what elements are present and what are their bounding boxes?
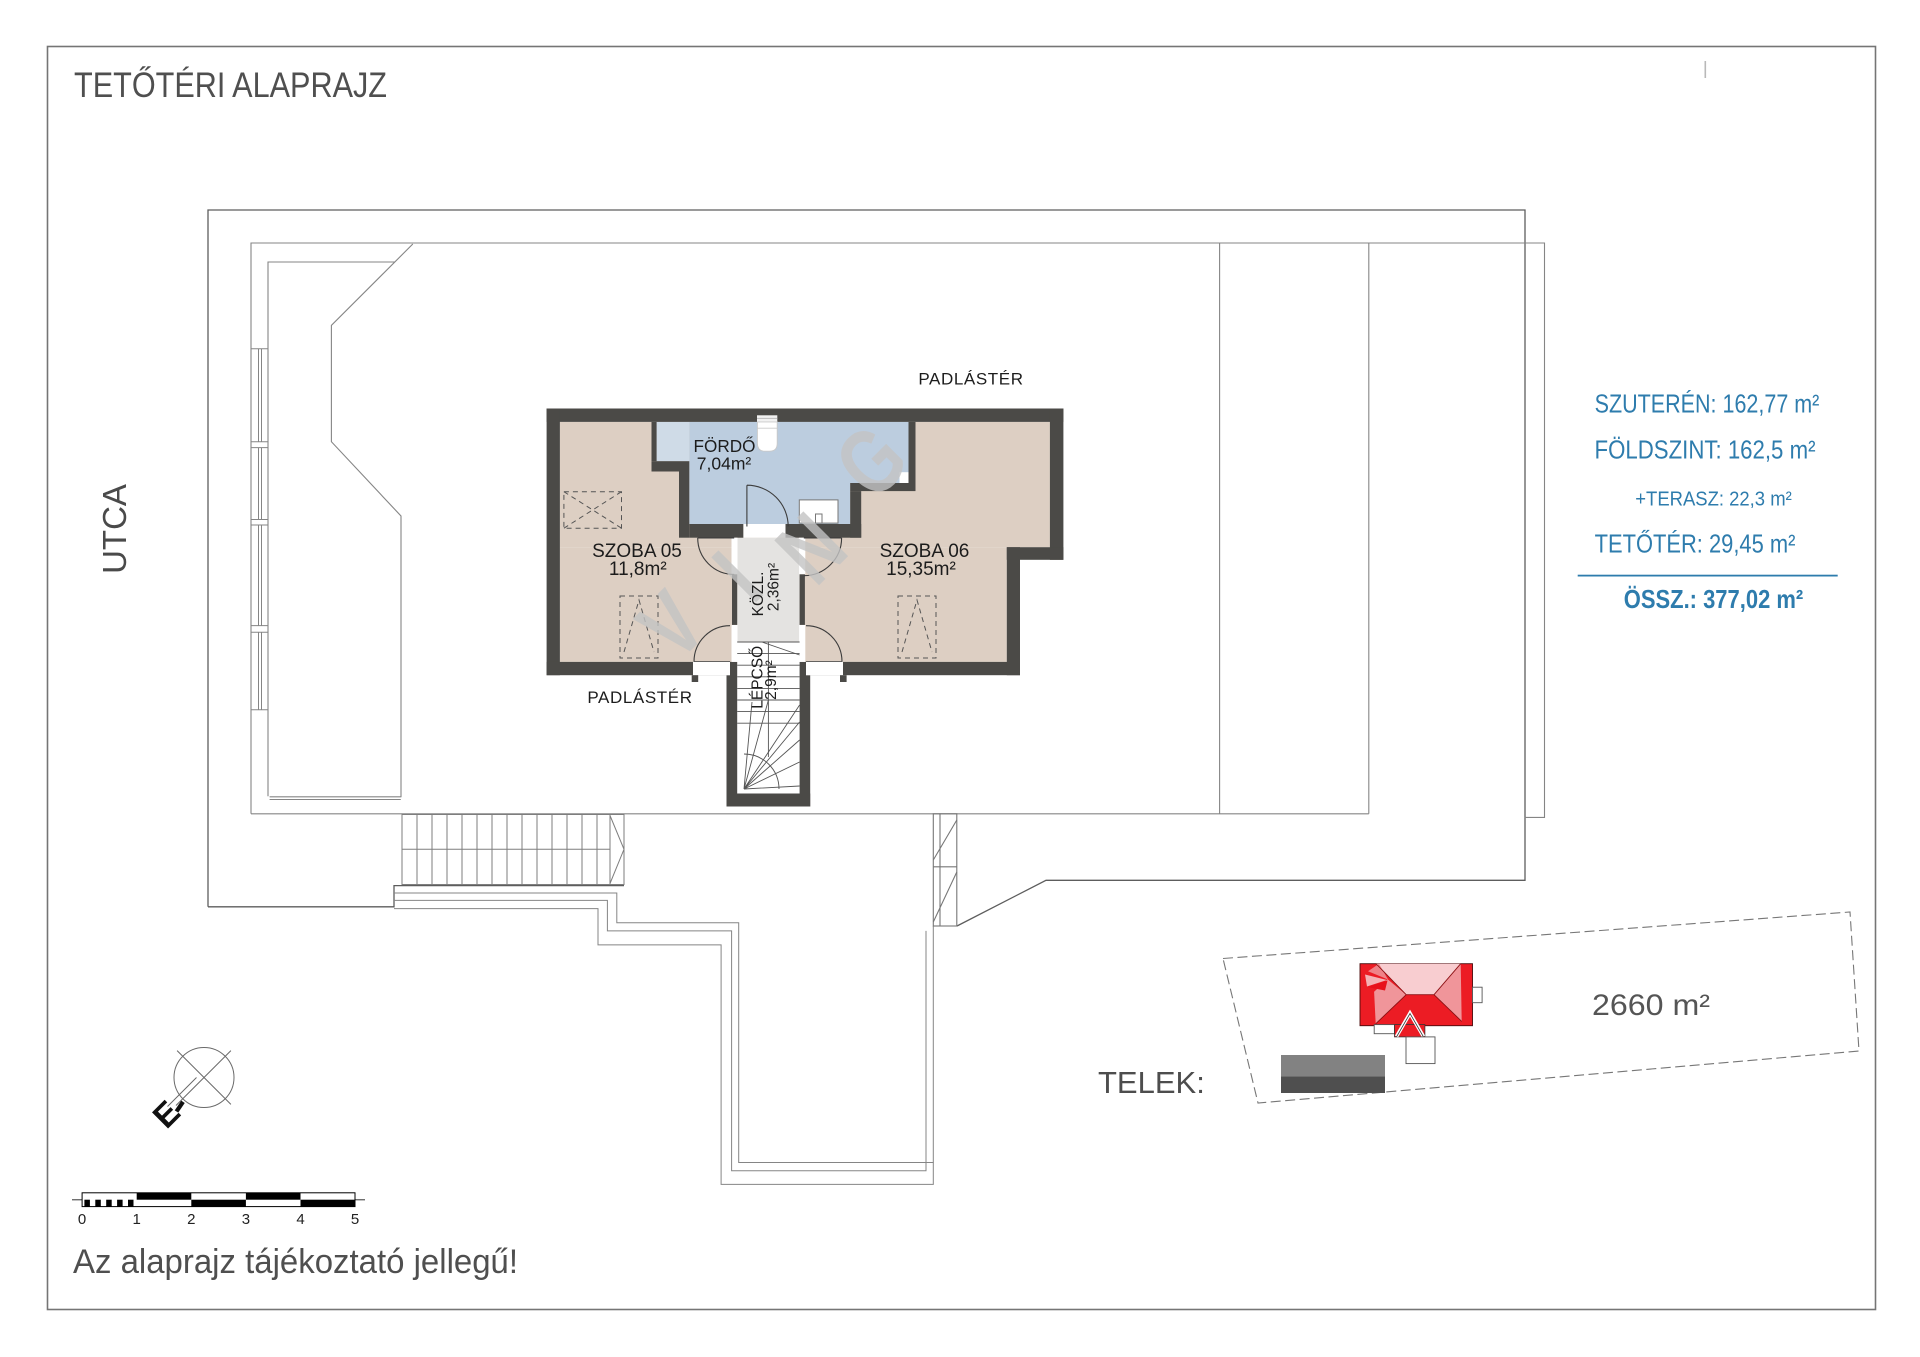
svg-text:11,8m²: 11,8m² bbox=[609, 559, 667, 580]
svg-text:KÖZL.: KÖZL. bbox=[749, 572, 767, 617]
svg-text:PADLÁSTÉR: PADLÁSTÉR bbox=[918, 370, 1023, 389]
svg-text:3: 3 bbox=[242, 1211, 250, 1228]
svg-text:TETŐTÉR: 29,45 m²: TETŐTÉR: 29,45 m² bbox=[1595, 529, 1796, 559]
svg-text:ÖSSZ.: 377,02 m²: ÖSSZ.: 377,02 m² bbox=[1624, 584, 1804, 614]
svg-text:TETŐTÉRI ALAPRAJZ: TETŐTÉRI ALAPRAJZ bbox=[74, 66, 387, 105]
svg-text:2,36m²: 2,36m² bbox=[766, 563, 783, 611]
svg-text:PADLÁSTÉR: PADLÁSTÉR bbox=[587, 688, 692, 707]
svg-text:15,35m²: 15,35m² bbox=[886, 559, 956, 580]
svg-text:UTCA: UTCA bbox=[96, 484, 133, 574]
svg-text:2,9m²: 2,9m² bbox=[763, 660, 780, 700]
svg-text:0: 0 bbox=[78, 1211, 86, 1228]
svg-text:FÖLDSZINT: 162,5 m²: FÖLDSZINT: 162,5 m² bbox=[1595, 435, 1816, 465]
svg-text:7,04m²: 7,04m² bbox=[697, 454, 752, 474]
svg-text:4: 4 bbox=[296, 1211, 304, 1228]
svg-text:5: 5 bbox=[351, 1211, 359, 1228]
svg-text:+TERASZ: 22,3 m²: +TERASZ: 22,3 m² bbox=[1635, 489, 1792, 511]
svg-text:2: 2 bbox=[187, 1211, 195, 1228]
svg-text:Az alaprajz tájékoztató jelleg: Az alaprajz tájékoztató jellegű! bbox=[73, 1243, 518, 1281]
svg-text:2660 m²: 2660 m² bbox=[1592, 989, 1710, 1022]
svg-text:1: 1 bbox=[133, 1211, 141, 1228]
svg-text:SZUTERÉN: 162,77 m²: SZUTERÉN: 162,77 m² bbox=[1595, 389, 1820, 419]
svg-text:TELEK:: TELEK: bbox=[1098, 1065, 1205, 1100]
